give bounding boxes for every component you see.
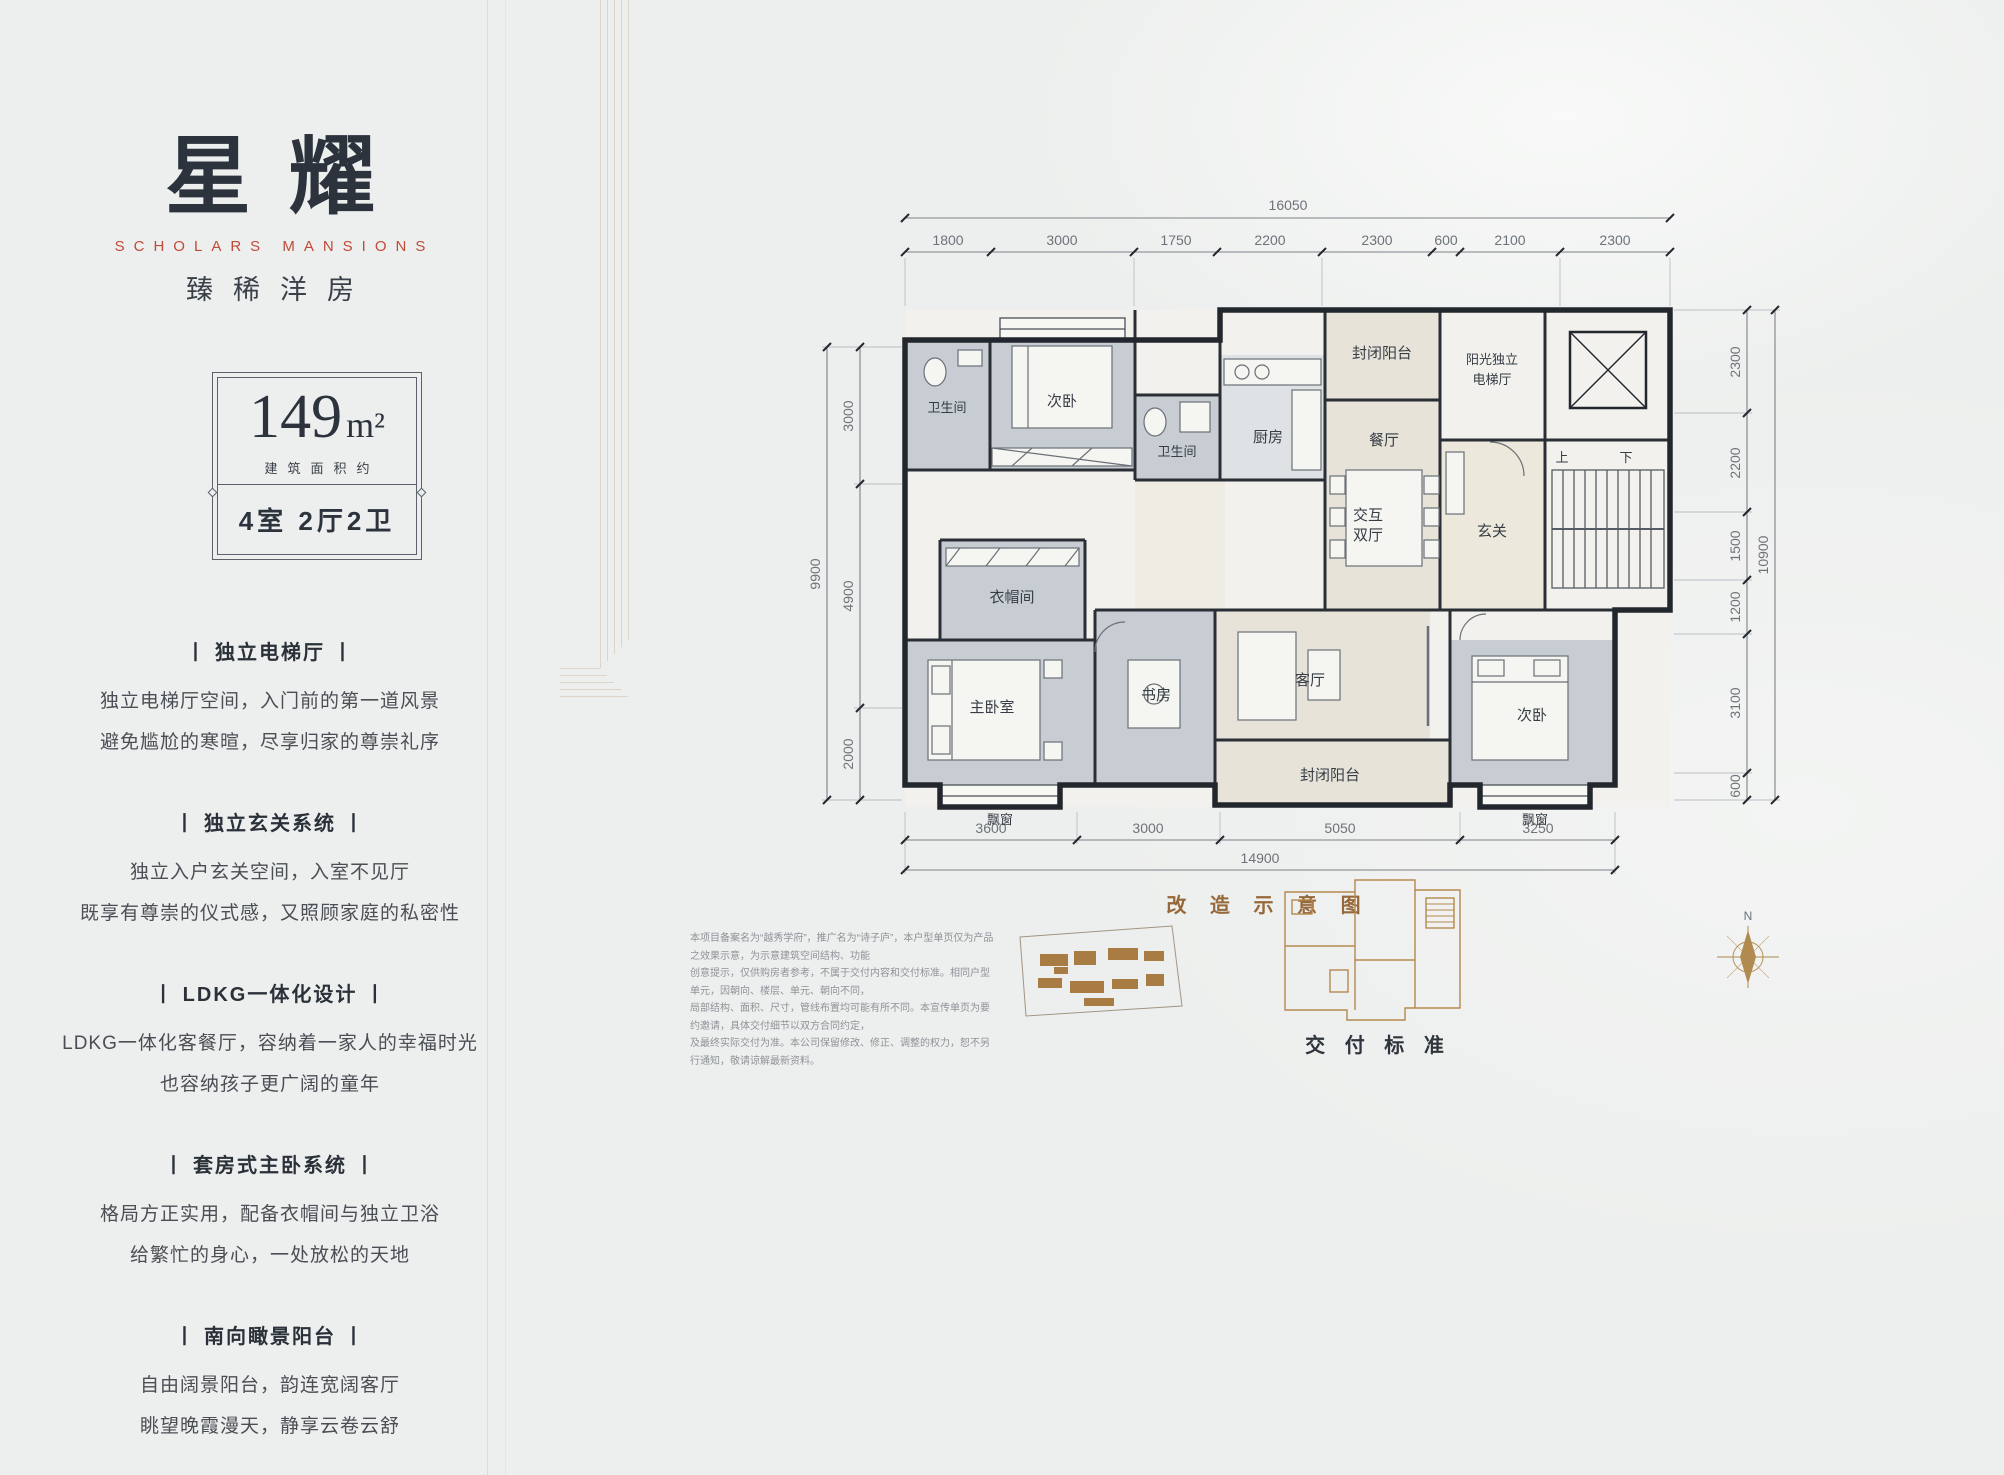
feature-line: 避免尴尬的寒暄，尽享归家的尊崇礼序	[60, 722, 480, 763]
area-section: 149 m² 建筑面积约	[218, 378, 416, 485]
compass-icon: N	[1717, 909, 1779, 988]
dim-right-seg: 600	[1727, 774, 1743, 798]
dim-right-seg: 2200	[1727, 447, 1743, 478]
dim-left-seg: 2000	[840, 738, 856, 769]
room-study: 书房	[1141, 687, 1171, 704]
room-cloakroom: 衣帽间	[989, 589, 1034, 606]
room-balcony-top: 封闭阳台	[1352, 345, 1412, 362]
dim-right-total: 10900	[1755, 535, 1771, 574]
feature-elevator-hall: 丨 独立电梯厅 丨 独立电梯厅空间，入门前的第一道风景 避免尴尬的寒暄，尽享归家…	[60, 636, 480, 763]
disclaimer-line: 及最终实际交付为准。本公司保留修改、修正、调整的权力，恕不另行通知，敬请谅解最新…	[690, 1035, 998, 1070]
dim-top-seg: 2200	[1254, 232, 1285, 248]
dim-top-seg: 600	[1434, 232, 1458, 248]
feature-foyer-system: 丨 独立玄关系统 丨 独立入户玄关空间，入室不见厅 既享有尊崇的仪式感，又照顾家…	[60, 807, 480, 934]
room-elevator-hall-2: 电梯厅	[1472, 372, 1511, 387]
stairs-up-label: 上	[1555, 450, 1568, 465]
feature-master-suite: 丨 套房式主卧系统 丨 格局方正实用，配备衣帽间与独立卫浴 给繁忙的身心，一处放…	[60, 1149, 480, 1276]
dim-top-total: 16050	[1269, 197, 1308, 213]
feature-title: 丨 独立玄关系统 丨	[60, 807, 480, 836]
disclaimer-line: 创意提示，仅供购房者参考，不属于交付内容和交付标准。相同户型单元，因朝向、楼层、…	[690, 965, 998, 1000]
dim-left-total: 9900	[807, 558, 823, 589]
room-bay-right: 飘窗	[1522, 812, 1548, 827]
dim-right-seg: 1500	[1727, 530, 1743, 561]
feature-line: LDKG一体化客餐厅，容纳着一家人的幸福时光	[60, 1023, 480, 1064]
feature-line: 眺望晚霞漫天，静享云卷云舒	[60, 1406, 480, 1447]
dim-top-seg: 3000	[1046, 232, 1077, 248]
area-value: 149	[249, 386, 342, 448]
dim-right-seg: 2300	[1727, 346, 1743, 377]
room-foyer: 玄关	[1477, 523, 1507, 540]
dim-top-seg: 1750	[1160, 232, 1191, 248]
feature-title: 丨 LDKG一体化设计 丨	[60, 978, 480, 1007]
room-dual-hall-2: 双厅	[1353, 527, 1383, 544]
feature-title: 丨 独立电梯厅 丨	[60, 636, 480, 665]
room-bath-top: 卫生间	[927, 400, 966, 415]
brand-title: 星耀	[60, 106, 480, 231]
dim-right-seg: 1200	[1727, 591, 1743, 622]
dim-left-seg: 4900	[840, 580, 856, 611]
dim-bottom-seg: 5050	[1324, 820, 1355, 836]
room-dual-hall-1: 交互	[1353, 506, 1383, 524]
flyer-page: 星耀 SCHOLARS MANSIONS 臻稀洋房 149 m² 建筑面积约 4…	[0, 0, 2004, 1475]
dim-top-seg: 2100	[1494, 232, 1525, 248]
delivery-standard-label: 交 付 标 准	[1305, 1033, 1451, 1057]
feature-line: 既享有尊崇的仪式感，又照顾家庭的私密性	[60, 893, 480, 934]
dim-top-seg: 2300	[1599, 232, 1630, 248]
dim-bottom-total: 14900	[1241, 850, 1280, 866]
dim-right-seg: 3100	[1727, 687, 1743, 718]
area-unit: m²	[346, 404, 385, 446]
disclaimer-line: 局部结构、面积、尺寸，管线布置均可能有所不同。本宣传单页为要约邀请，具体交付细节…	[690, 1000, 998, 1035]
room-kitchen: 厨房	[1253, 429, 1283, 446]
feature-line: 独立入户玄关空间，入室不见厅	[60, 852, 480, 893]
feature-line: 给繁忙的身心，一处放松的天地	[60, 1235, 480, 1276]
disclaimer-line: 本项目备案名为“越秀学府”，推广名为“诗子庐”，本户型单页仅为产品之效果示意，为…	[690, 930, 998, 965]
room-master: 主卧室	[969, 699, 1014, 716]
room-bedroom-top: 次卧	[1047, 393, 1077, 410]
room-dining: 餐厅	[1369, 432, 1399, 449]
room-layout-label: 4室 2厅2卫	[218, 485, 416, 554]
stairs-down-label: 下	[1619, 450, 1632, 465]
feature-line: 也容纳孩子更广阔的童年	[60, 1064, 480, 1105]
room-balcony-bottom: 封闭阳台	[1300, 767, 1360, 784]
area-note: 建筑面积约	[254, 458, 379, 477]
feature-ldkg-design: 丨 LDKG一体化设计 丨 LDKG一体化客餐厅，容纳着一家人的幸福时光 也容纳…	[60, 978, 480, 1105]
room-living: 客厅	[1295, 672, 1325, 689]
room-elevator-hall-1: 阳光独立	[1466, 352, 1518, 367]
room-bath-mid: 卫生间	[1157, 444, 1196, 459]
site-diagram	[1020, 926, 1182, 1016]
feature-line: 独立电梯厅空间，入门前的第一道风景	[60, 681, 480, 722]
plan-caption: 改 造 示 意 图	[1166, 893, 1369, 917]
disclaimer-text: 本项目备案名为“越秀学府”，推广名为“诗子庐”，本户型单页仅为产品之效果示意，为…	[690, 930, 998, 1070]
dim-left-seg: 3000	[840, 400, 856, 431]
room-bay-left: 飘窗	[987, 812, 1013, 827]
room-bedroom-bottom: 次卧	[1517, 707, 1547, 724]
dim-bottom-seg: 3000	[1132, 820, 1163, 836]
feature-title: 丨 南向瞰景阳台 丨	[60, 1320, 480, 1349]
feature-list: 丨 独立电梯厅 丨 独立电梯厅空间，入门前的第一道风景 避免尴尬的寒暄，尽享归家…	[60, 636, 480, 1475]
feature-south-balcony: 丨 南向瞰景阳台 丨 自由阔景阳台，韵连宽阔客厅 眺望晚霞漫天，静享云卷云舒	[60, 1320, 480, 1447]
feature-title: 丨 套房式主卧系统 丨	[60, 1149, 480, 1178]
compass-n-label: N	[1744, 909, 1753, 923]
area-spec-box: 149 m² 建筑面积约 4室 2厅2卫	[212, 372, 422, 560]
dim-top-seg: 2300	[1361, 232, 1392, 248]
brand-tagline: 臻稀洋房	[60, 268, 480, 307]
area-spec-inner: 149 m² 建筑面积约 4室 2厅2卫	[217, 377, 417, 555]
feature-line: 自由阔景阳台，韵连宽阔客厅	[60, 1365, 480, 1406]
feature-line: 格局方正实用，配备衣帽间与独立卫浴	[60, 1194, 480, 1235]
brand-subtitle: SCHOLARS MANSIONS	[60, 238, 480, 255]
dim-top-seg: 1800	[932, 232, 963, 248]
